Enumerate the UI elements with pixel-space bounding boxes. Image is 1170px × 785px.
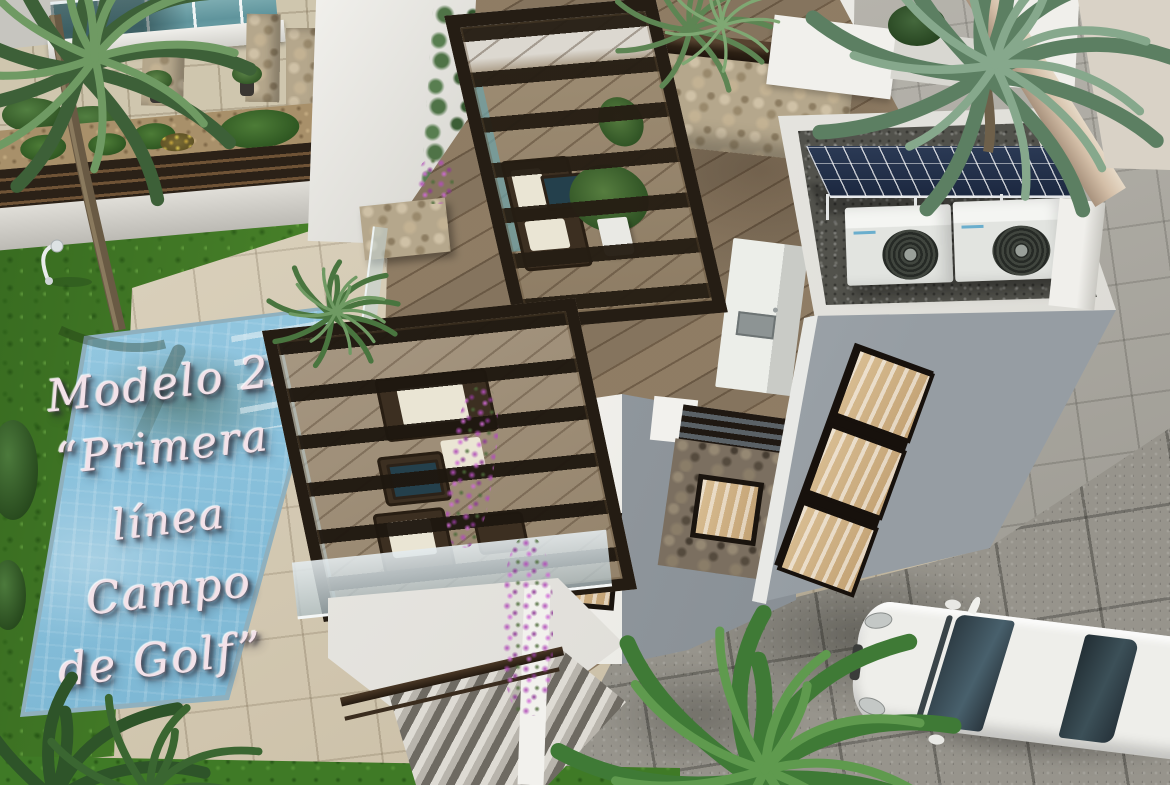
ac-fan-grille — [992, 225, 1052, 277]
ac-fan-grille — [881, 229, 939, 281]
agave-plant — [87, 132, 127, 157]
stair-shadow-on-driveway — [600, 660, 800, 770]
kitchen-sink — [736, 311, 777, 339]
potted-plant — [240, 80, 254, 96]
air-conditioning-unit — [953, 198, 1068, 282]
ac-brand-stripe — [854, 231, 876, 235]
watermark-line-5: de Golf” — [24, 621, 297, 696]
watermark-line-3: línea — [32, 484, 305, 556]
small-tree — [888, 4, 946, 46]
ac-brand-stripe — [961, 225, 983, 229]
small-window — [690, 474, 764, 547]
solar-panel-leg — [826, 194, 829, 220]
air-conditioning-unit — [845, 204, 954, 286]
watermark-line-4: Campo — [32, 554, 305, 628]
neighbour-wall — [766, 15, 899, 100]
architectural-render-scene: Modelo 22 “Primera línea Campo de Golf” — [0, 0, 1170, 785]
bougainvillea — [503, 538, 553, 716]
car-mirror — [928, 734, 945, 746]
potted-plant — [150, 86, 165, 103]
solar-panel-array — [806, 146, 1080, 198]
bougainvillea — [418, 158, 454, 204]
kitchen-faucet — [773, 307, 779, 313]
agave-plant — [19, 133, 67, 163]
watermark-line-2: “Primera — [26, 412, 299, 485]
